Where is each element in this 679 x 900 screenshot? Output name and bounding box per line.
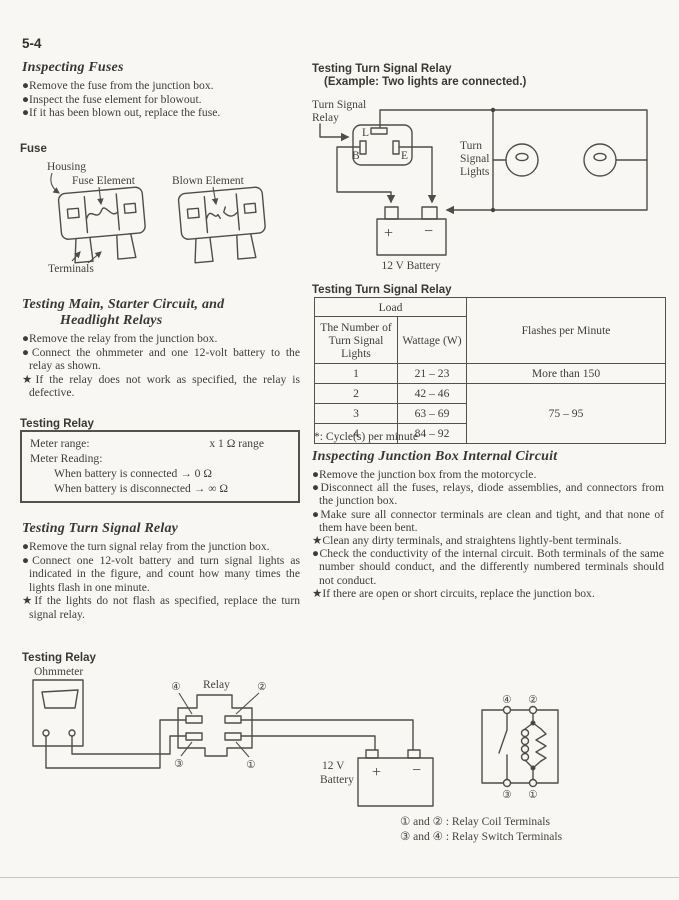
terminal-2-badge: ② [257,681,266,693]
meter-range-label: Meter range: [30,436,90,451]
bullet-item: ●Make sure all connector terminals are c… [312,508,664,534]
battery-label: 12 V Battery [382,260,441,272]
bullet-item: ●Remove the turn signal relay from the j… [22,540,300,554]
note-text: Clean any dirty terminals, and straighte… [322,534,621,547]
schematic-terminal-4-badge: ④ [502,694,511,706]
battery-label-line1: 12 V [322,760,345,772]
bullet-marker: ● [312,547,320,560]
meter-reading-label: Meter Reading: [30,451,290,466]
bullet-text: Inspect the fuse element for blowout. [29,93,202,106]
flash-table-title: Testing Turn Signal Relay [312,283,452,297]
reading-connected: When battery is connected → 0 Ω [30,466,290,481]
bullet-marker: ● [22,540,29,553]
section-heading: Inspecting Junction Box Internal Circuit [312,449,664,465]
bullet-item: ●Check the conductivity of the internal … [312,547,664,587]
bullet-item: ●Connect one 12-volt battery and turn si… [22,554,300,595]
note-marker: ★ [312,534,322,547]
fuse-blown-icon [178,187,268,264]
bullet-item: ●Disconnect all the fuses, relays, diode… [312,481,664,507]
bullet-marker: ● [22,332,29,345]
cell-lights: 1 [315,364,398,384]
bullet-list: ●Remove the relay from the junction box.… [22,332,300,400]
ohmmeter-label: Ohmmeter [34,666,83,678]
header-wattage: Wattage (W) [398,317,467,364]
header-flashes: Flashes per Minute [467,298,666,364]
note-marker: ★ [312,587,322,600]
cell-wattage: 21 – 23 [398,364,467,384]
fuse-good-icon [58,187,148,264]
note-item: ★If there are open or short circuits, re… [312,587,664,600]
relay-label-line2: Relay [312,112,339,124]
housing-label: Housing [47,161,86,173]
section-heading: Inspecting Fuses [22,60,300,76]
relay-test-figure-title: Testing Relay [22,651,96,665]
cell-flashes: More than 150 [467,364,666,384]
flash-rate-table: Load Flashes per Minute The Number of Tu… [314,297,666,444]
battery-label-line2: Battery [320,774,354,786]
battery-plus: + [372,764,381,781]
lights-label-line1: Turn [460,140,482,152]
schematic-terminal-3-badge: ③ [502,789,511,801]
bullet-text: Remove the junction box from the motorcy… [319,468,536,481]
table-row: 2 42 – 46 75 – 95 [315,384,666,404]
section-heading: Testing Turn Signal Relay [22,521,300,537]
manual-page: 5-4 Inspecting Fuses ●Remove the fuse fr… [0,0,679,900]
legend-switch-terminals: ③ and ④ : Relay Switch Terminals [400,831,563,843]
terminal-l-label: L [362,127,369,139]
battery-plus: + [384,225,393,242]
relay-label: Relay [203,679,230,691]
schematic-terminal-2-badge: ② [528,694,537,706]
bullet-text: Make sure all connector terminals are cl… [319,508,664,534]
terminal-e-label: E [401,150,408,162]
page-number: 5-4 [22,36,42,52]
header-load: Load [315,298,467,317]
battery-icon [358,750,433,806]
bullet-marker: ● [22,106,29,119]
bullet-item: ●Remove the fuse from the junction box. [22,79,300,93]
bullet-list: ●Remove the junction box from the motorc… [312,468,664,600]
testing-relay-spec-box: Meter range: x 1 Ω range Meter Reading: … [20,430,300,503]
bullet-marker: ● [312,468,319,481]
fuse-figure: Housing Fuse Element Blown Element Termi… [20,156,310,288]
relay-label-line1: Turn Signal [312,99,366,111]
note-item: ★If the relay does not work as specified… [22,373,300,400]
section-heading-line2: Headlight Relays [22,313,300,329]
section-testing-turn-signal-relay: Testing Turn Signal Relay ●Remove the tu… [22,521,300,622]
bullet-marker: ● [22,346,32,359]
section-inspecting-junction-box: Inspecting Junction Box Internal Circuit… [312,449,664,600]
bullet-marker: ● [22,554,32,567]
testing-relay-spec-title: Testing Relay [20,417,94,431]
cell-flashes: 75 – 95 [467,384,666,444]
ohmmeter-icon [33,680,83,746]
terminal-3-badge: ③ [174,758,183,770]
blown-element-label: Blown Element [172,175,245,187]
terminal-4-badge: ④ [171,681,180,693]
cell-wattage: 42 – 46 [398,384,467,404]
cell-wattage: 63 – 69 [398,404,467,424]
meter-range-row: Meter range: x 1 Ω range [30,436,290,451]
fuse-element-label: Fuse Element [72,175,136,187]
bullet-item: ●Inspect the fuse element for blowout. [22,93,300,107]
note-text: If the lights do not flash as specified,… [29,594,300,621]
header-lights: The Number of Turn Signal Lights [315,317,398,364]
bullet-marker: ● [22,93,29,106]
bullet-list: ●Remove the fuse from the junction box. … [22,79,300,120]
terminal-b-label: B [352,150,360,162]
bullet-marker: ● [312,481,321,494]
circuit-figure-subtitle: (Example: Two lights are connected.) [324,75,526,89]
bullet-list: ●Remove the turn signal relay from the j… [22,540,300,622]
note-text: If the relay does not work as specified,… [29,373,300,400]
section-testing-main-relays: Testing Main, Starter Circuit, and Headl… [22,297,300,400]
relay-test-figure: Ohmmeter Relay ④ ② ③ ① + − 12 V Battery … [20,664,670,854]
bullet-text: Connect the ohmmeter and one 12-volt bat… [29,346,300,373]
battery-minus: − [424,223,433,240]
table-row: 1 21 – 23 More than 150 [315,364,666,384]
bullet-text: Connect one 12-volt battery and turn sig… [29,554,300,594]
note-item: ★If the lights do not flash as specified… [22,594,300,621]
terminals-label: Terminals [48,263,94,275]
bullet-item: ●If it has been blown out, replace the f… [22,106,300,120]
lights-label-line2: Signal [460,153,489,165]
table-footnote: *: Cycle(s) per minute [314,430,418,444]
bullet-item: ●Remove the junction box from the motorc… [312,468,664,481]
page-bottom-rule [0,877,679,878]
turn-signal-light-icon [506,144,538,176]
turn-signal-light-icon [584,144,616,176]
relay-internal-schematic [482,707,558,787]
bullet-text: Disconnect all the fuses, relays, diode … [319,481,664,507]
lights-label-line3: Lights [460,166,490,178]
bullet-text: Remove the relay from the junction box. [29,332,217,345]
bullet-text: If it has been blown out, replace the fu… [29,106,220,119]
bullet-text: Remove the turn signal relay from the ju… [29,540,270,553]
note-marker: ★ [22,373,36,386]
circuit-figure-title: Testing Turn Signal Relay [312,62,452,76]
turn-signal-circuit-figure: Turn Signal Relay L B E Turn Signal Ligh… [310,92,679,284]
cell-lights: 3 [315,404,398,424]
meter-range-value: x 1 Ω range [209,436,264,451]
fuse-figure-title: Fuse [20,142,47,156]
table-row-load-header: Load Flashes per Minute [315,298,666,317]
reading-disconnected: When battery is disconnected → ∞ Ω [30,481,290,496]
note-marker: ★ [22,594,34,607]
section-inspecting-fuses: Inspecting Fuses ●Remove the fuse from t… [22,60,300,120]
legend-coil-terminals: ① and ② : Relay Coil Terminals [400,816,550,828]
terminal-1-badge: ① [246,759,255,771]
bullet-marker: ● [22,79,29,92]
schematic-terminal-1-badge: ① [528,789,537,801]
cell-lights: 2 [315,384,398,404]
bullet-text: Check the conductivity of the internal c… [319,547,664,586]
note-text: If there are open or short circuits, rep… [322,587,594,600]
bullet-text: Remove the fuse from the junction box. [29,79,214,92]
note-item: ★Clean any dirty terminals, and straight… [312,534,664,547]
battery-minus: − [412,762,421,779]
bullet-item: ●Remove the relay from the junction box. [22,332,300,346]
section-heading-line1: Testing Main, Starter Circuit, and [22,297,300,313]
bullet-item: ●Connect the ohmmeter and one 12-volt ba… [22,346,300,373]
